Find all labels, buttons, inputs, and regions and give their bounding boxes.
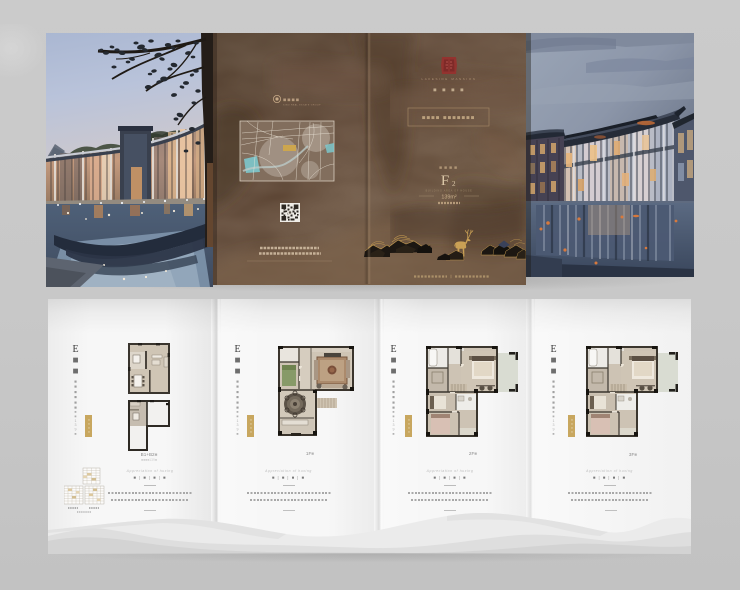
- svg-text:■■■■: ■■■■: [283, 98, 300, 104]
- svg-text:■■■■: ■■■■: [433, 88, 469, 94]
- svg-text:■■■■ ■■■■■■■: ■■■■ ■■■■■■■: [422, 116, 476, 122]
- svg-text:■■■■: ■■■■: [439, 165, 459, 171]
- svg-text:F: F: [441, 173, 449, 189]
- svg-text:SINO REAL ESTATE GROUP: SINO REAL ESTATE GROUP: [283, 104, 321, 107]
- svg-text:139m²: 139m²: [441, 195, 456, 201]
- svg-text:LAKESIDE MANSION: LAKESIDE MANSION: [421, 77, 476, 81]
- svg-text:BUILDING AREA OF HOUSE: BUILDING AREA OF HOUSE: [426, 190, 473, 193]
- svg-text:2: 2: [452, 180, 456, 188]
